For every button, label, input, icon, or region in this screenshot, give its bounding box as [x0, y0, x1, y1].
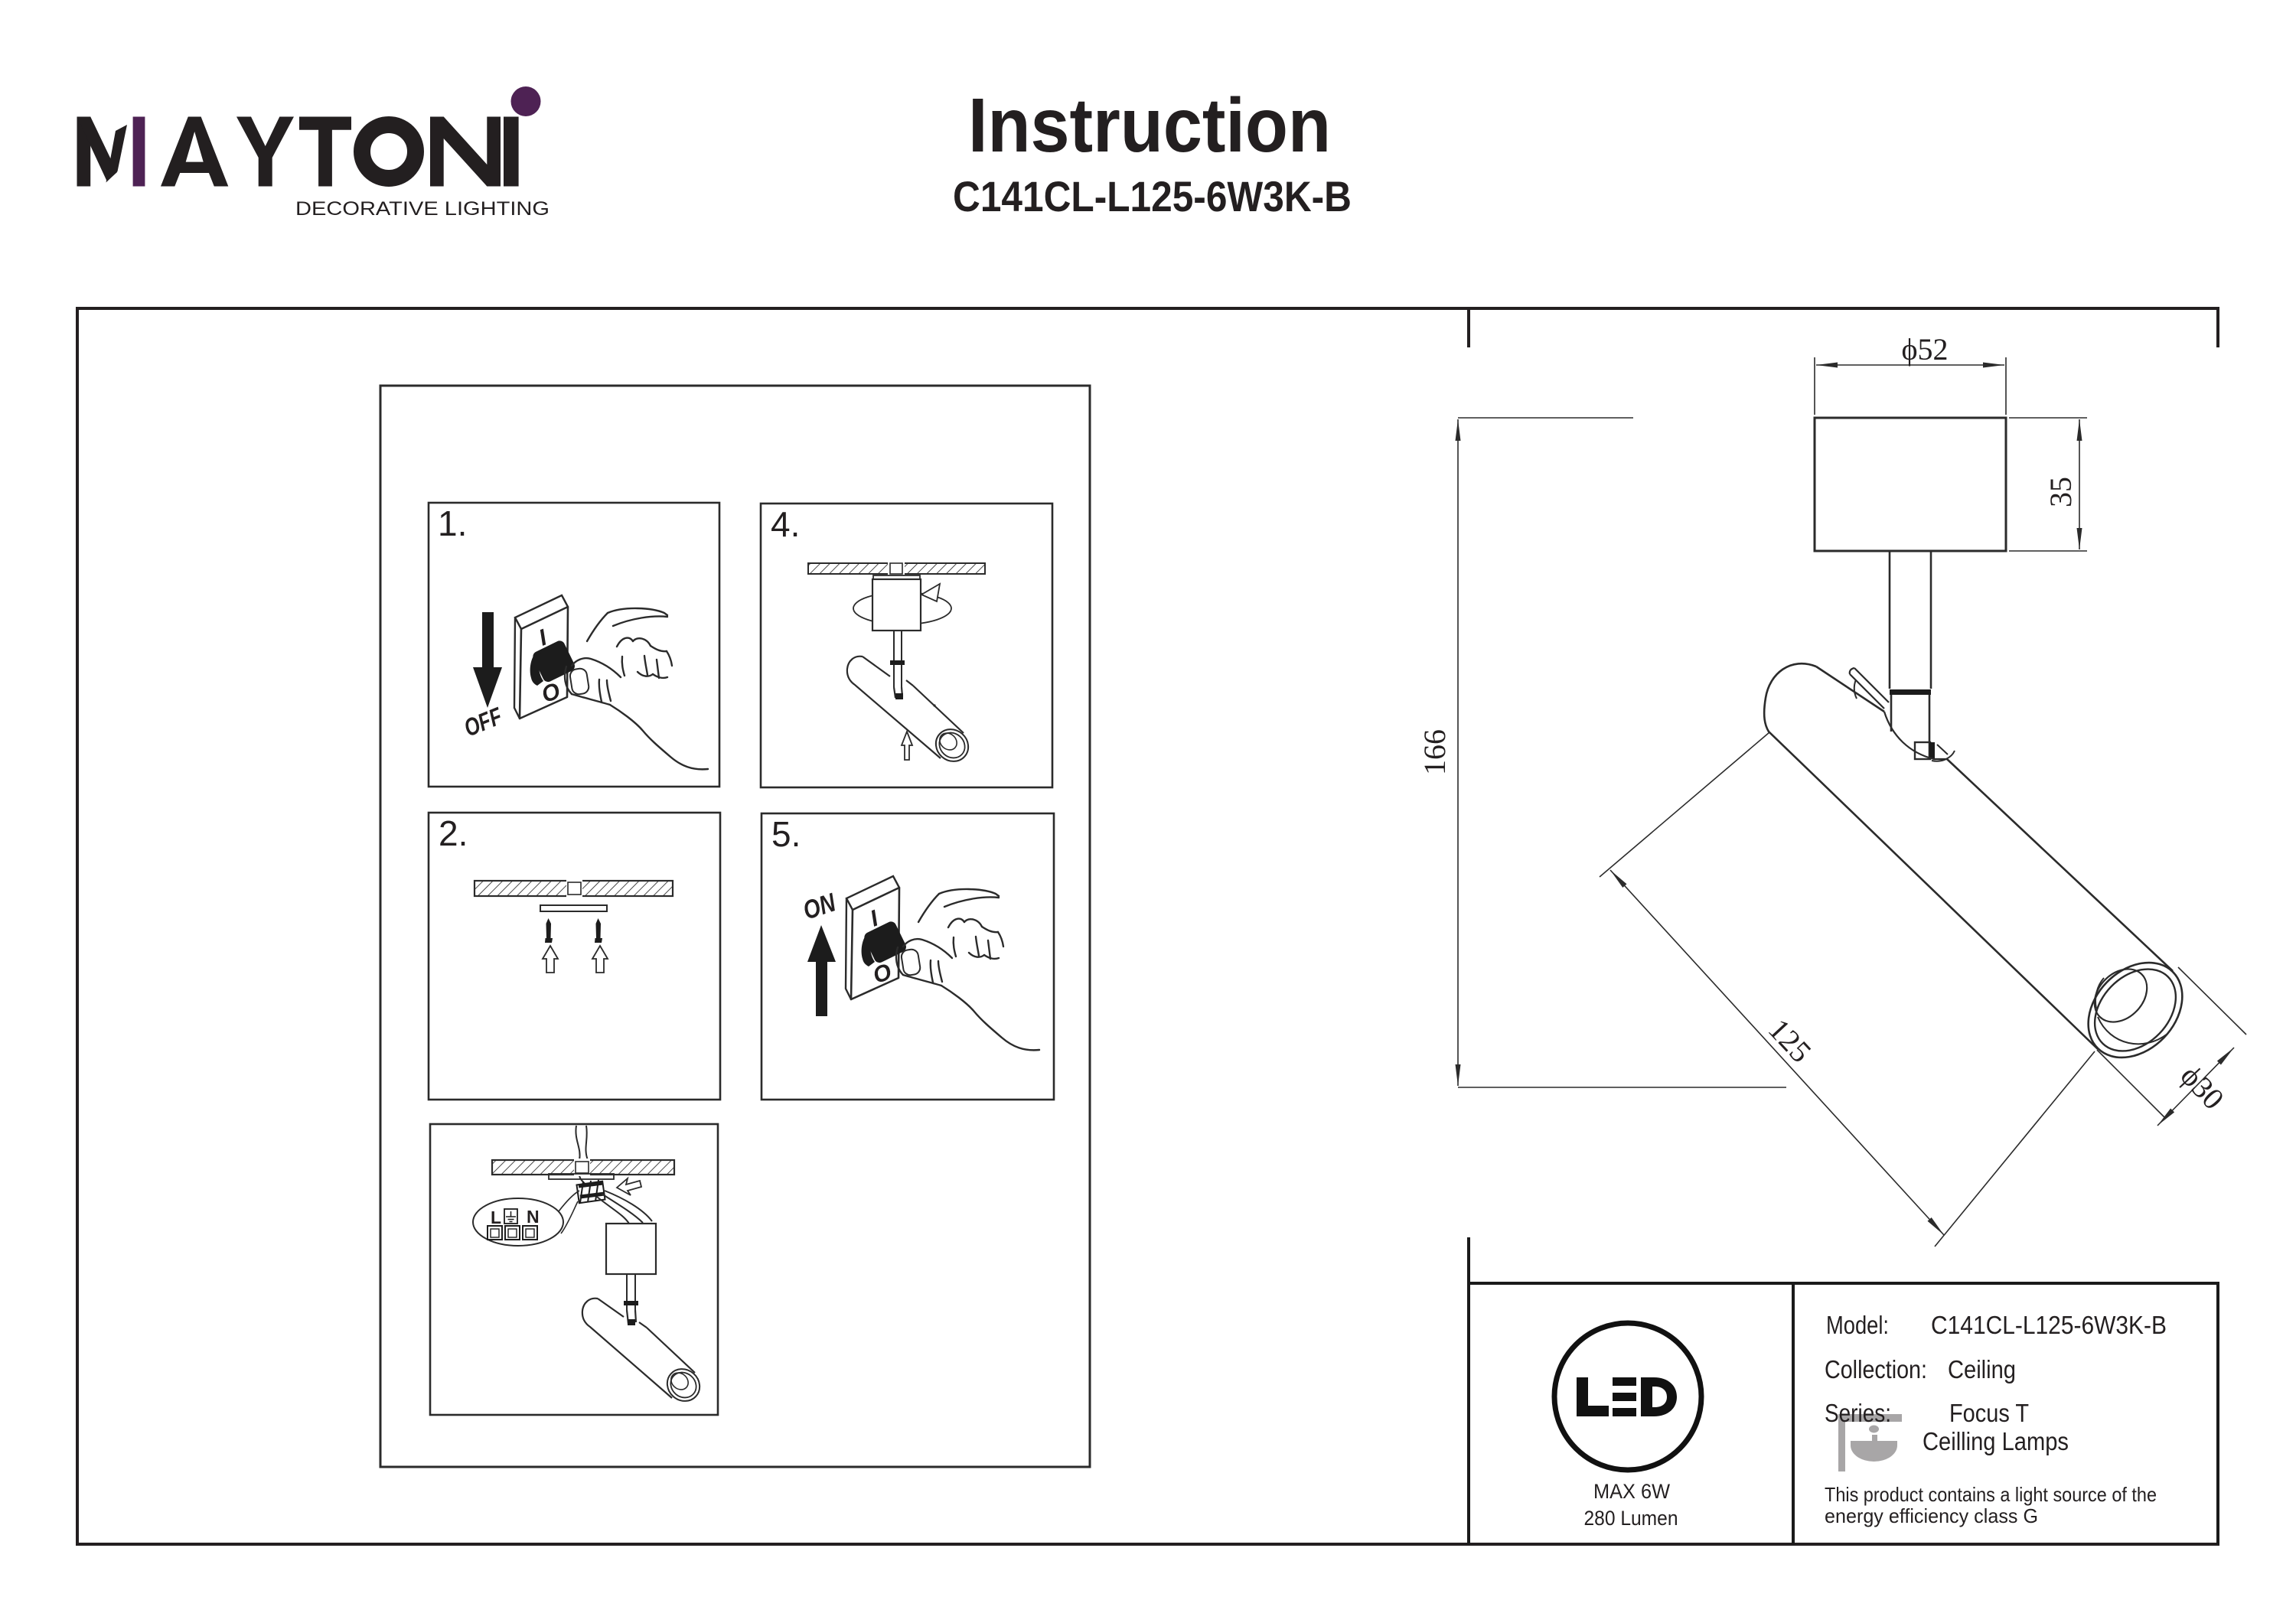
svg-text:5.: 5. [771, 814, 801, 854]
svg-text:166: 166 [1417, 729, 1452, 775]
svg-text:L: L [491, 1207, 501, 1227]
svg-text:Ceilling Lamps: Ceilling Lamps [1923, 1427, 2069, 1455]
svg-text:N: N [527, 1207, 540, 1227]
svg-text:DECORATIVE LIGHTING: DECORATIVE LIGHTING [295, 198, 550, 220]
svg-text:energy efficiency class G: energy efficiency class G [1825, 1504, 2038, 1527]
svg-text:Model:: Model: [1826, 1311, 1889, 1339]
svg-text:Ceiling: Ceiling [1948, 1355, 2016, 1383]
svg-text:280 Lumen: 280 Lumen [1584, 1507, 1678, 1530]
svg-text:Collection:: Collection: [1825, 1355, 1927, 1383]
svg-text:ϕ52: ϕ52 [1901, 332, 1948, 367]
svg-text:35: 35 [2043, 477, 2078, 507]
svg-text:MAX 6W: MAX 6W [1593, 1480, 1670, 1503]
svg-text:Series:: Series: [1825, 1399, 1891, 1427]
svg-text:C141CL-L125-6W3K-B: C141CL-L125-6W3K-B [953, 172, 1352, 220]
svg-text:Instruction: Instruction [968, 83, 1331, 168]
svg-text:2.: 2. [439, 813, 468, 853]
svg-text:This product contains a light: This product contains a light source of … [1825, 1483, 2157, 1506]
svg-text:Focus T: Focus T [1949, 1399, 2029, 1427]
svg-text:4.: 4. [771, 504, 800, 544]
svg-text:C141CL-L125-6W3K-B: C141CL-L125-6W3K-B [1931, 1311, 2167, 1339]
svg-text:1.: 1. [438, 504, 467, 543]
